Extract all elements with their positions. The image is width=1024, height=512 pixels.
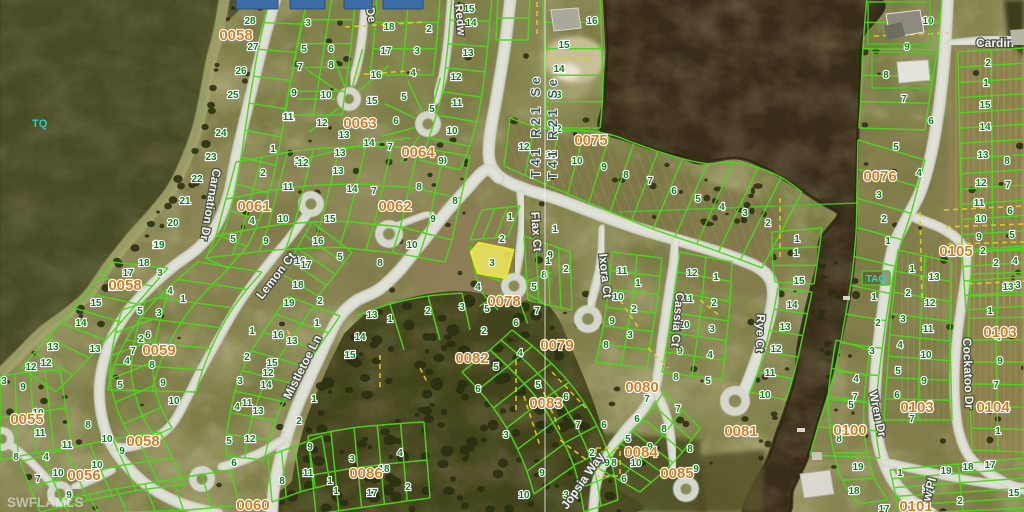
svg-text:3: 3 [1, 376, 7, 387]
svg-text:4: 4 [397, 448, 403, 459]
svg-text:1: 1 [871, 292, 877, 303]
svg-text:17: 17 [380, 46, 392, 57]
svg-text:28: 28 [244, 16, 256, 27]
svg-text:14: 14 [786, 300, 798, 311]
svg-text:12: 12 [924, 298, 936, 309]
svg-text:1: 1 [987, 306, 993, 317]
svg-text:0080: 0080 [625, 379, 658, 396]
svg-text:5: 5 [429, 104, 435, 115]
svg-text:18: 18 [962, 462, 974, 473]
svg-text:8: 8 [328, 60, 334, 71]
svg-text:7: 7 [575, 420, 581, 431]
svg-text:14: 14 [346, 184, 358, 195]
svg-text:0086: 0086 [349, 465, 382, 482]
svg-text:16: 16 [272, 330, 284, 341]
svg-text:2: 2 [875, 318, 881, 329]
svg-text:0062: 0062 [378, 198, 411, 215]
svg-text:5: 5 [117, 380, 123, 391]
svg-text:10: 10 [759, 390, 771, 401]
svg-text:8: 8 [452, 196, 458, 207]
svg-text:18: 18 [383, 22, 395, 33]
svg-text:11: 11 [283, 182, 294, 193]
svg-text:3: 3 [503, 430, 509, 441]
svg-text:2: 2 [985, 58, 991, 69]
svg-text:12: 12 [25, 362, 37, 373]
svg-text:11: 11 [974, 198, 985, 209]
svg-text:Cardin: Cardin [976, 36, 1014, 50]
svg-text:4: 4 [707, 350, 713, 361]
svg-text:3: 3 [709, 324, 715, 335]
svg-text:15: 15 [979, 100, 991, 111]
svg-text:6: 6 [634, 414, 640, 425]
svg-text:2: 2 [631, 304, 637, 315]
svg-text:8: 8 [1004, 156, 1010, 167]
svg-text:1: 1 [249, 326, 255, 337]
svg-text:3: 3 [156, 308, 162, 319]
svg-text:0055: 0055 [10, 411, 43, 428]
svg-text:5: 5 [337, 252, 343, 263]
svg-text:1: 1 [897, 468, 903, 479]
svg-text:13: 13 [334, 148, 346, 159]
svg-text:17: 17 [984, 460, 996, 471]
svg-text:8: 8 [611, 458, 617, 469]
svg-text:9: 9 [921, 376, 927, 387]
svg-text:10: 10 [168, 396, 180, 407]
svg-text:8: 8 [661, 424, 667, 435]
svg-text:12: 12 [770, 344, 782, 355]
svg-text:6: 6 [601, 420, 607, 431]
svg-text:8: 8 [687, 444, 693, 455]
svg-text:0076: 0076 [863, 168, 896, 185]
svg-text:1: 1 [552, 224, 558, 235]
svg-text:10: 10 [406, 240, 418, 251]
svg-text:14: 14 [260, 380, 272, 391]
svg-text:5: 5 [301, 44, 307, 55]
svg-text:14: 14 [979, 122, 991, 133]
svg-text:1: 1 [995, 426, 1001, 437]
svg-text:9: 9 [601, 162, 607, 173]
svg-text:2: 2 [426, 24, 432, 35]
svg-text:7: 7 [130, 346, 136, 357]
svg-text:5: 5 [226, 436, 232, 447]
svg-text:4: 4 [410, 68, 416, 79]
svg-text:2: 2 [711, 298, 717, 309]
svg-text:1: 1 [885, 236, 891, 247]
svg-text:10: 10 [277, 214, 289, 225]
svg-text:7: 7 [297, 62, 303, 73]
svg-text:1: 1 [713, 272, 719, 283]
svg-text:7: 7 [1005, 180, 1011, 191]
svg-text:3: 3 [876, 190, 882, 201]
svg-text:4: 4 [719, 202, 725, 213]
svg-text:6: 6 [231, 458, 237, 469]
svg-text:8: 8 [13, 452, 19, 463]
svg-text:0105: 0105 [939, 243, 972, 260]
svg-text:5: 5 [893, 142, 899, 153]
svg-text:15: 15 [793, 276, 805, 287]
svg-text:14: 14 [354, 332, 366, 343]
svg-text:1: 1 [387, 314, 393, 325]
svg-text:0058: 0058 [108, 277, 141, 294]
svg-text:13: 13 [89, 344, 101, 355]
svg-text:18: 18 [138, 258, 150, 269]
svg-text:9: 9 [693, 464, 699, 475]
svg-text:1: 1 [311, 394, 317, 405]
svg-text:3: 3 [1015, 280, 1021, 291]
svg-text:5: 5 [531, 282, 537, 293]
svg-text:Cockatoo Dr: Cockatoo Dr [960, 338, 976, 410]
svg-text:15: 15 [366, 96, 378, 107]
svg-text:13: 13 [286, 336, 298, 347]
svg-text:1: 1 [793, 248, 799, 259]
svg-text:4: 4 [897, 340, 903, 351]
svg-text:15: 15 [324, 214, 336, 225]
svg-text:2: 2 [563, 264, 569, 275]
svg-text:4: 4 [124, 356, 130, 367]
svg-text:12: 12 [316, 118, 328, 129]
svg-text:3: 3 [742, 208, 748, 219]
svg-text:TQ: TQ [32, 118, 48, 130]
svg-text:10: 10 [922, 16, 934, 27]
svg-text:T41 R21 Se: T41 R21 Se [545, 76, 560, 180]
svg-text:4: 4 [234, 402, 240, 413]
svg-text:T41 R21 Se: T41 R21 Se [528, 74, 543, 178]
svg-text:3: 3 [305, 18, 311, 29]
svg-text:2: 2 [993, 258, 999, 269]
svg-text:6: 6 [328, 44, 334, 55]
svg-text:5: 5 [705, 376, 711, 387]
svg-text:13: 13 [332, 166, 344, 177]
svg-text:0085: 0085 [660, 465, 693, 482]
svg-text:13: 13 [928, 272, 940, 283]
svg-text:1: 1 [545, 256, 551, 267]
svg-text:4: 4 [517, 348, 523, 359]
svg-text:7: 7 [901, 94, 907, 105]
svg-text:10: 10 [518, 490, 530, 501]
svg-text:8: 8 [377, 258, 383, 269]
svg-text:1: 1 [507, 212, 513, 223]
svg-text:2: 2 [881, 214, 887, 225]
svg-text:9: 9 [263, 236, 269, 247]
svg-text:4: 4 [1012, 256, 1018, 267]
svg-text:4: 4 [475, 282, 481, 293]
svg-text:7: 7 [675, 404, 681, 415]
svg-text:12: 12 [40, 358, 52, 369]
svg-text:2: 2 [980, 246, 986, 257]
svg-text:11: 11 [923, 324, 934, 335]
svg-text:6: 6 [894, 390, 900, 401]
svg-text:21: 21 [179, 196, 191, 207]
svg-text:15: 15 [558, 40, 570, 51]
svg-text:6: 6 [563, 392, 569, 403]
svg-text:0081: 0081 [724, 423, 757, 440]
svg-text:0061: 0061 [237, 198, 270, 215]
svg-text:0060: 0060 [236, 497, 269, 512]
svg-text:5: 5 [695, 194, 701, 205]
svg-text:0082: 0082 [455, 350, 488, 367]
svg-text:13: 13 [462, 48, 474, 59]
svg-text:9: 9 [976, 232, 982, 243]
svg-text:0083: 0083 [529, 395, 562, 412]
svg-text:0058: 0058 [126, 433, 159, 450]
svg-text:6: 6 [1007, 206, 1013, 217]
svg-text:8: 8 [603, 340, 609, 351]
svg-text:17: 17 [300, 260, 312, 271]
svg-text:0100: 0100 [833, 422, 866, 439]
svg-text:3: 3 [237, 376, 243, 387]
svg-text:5: 5 [535, 380, 541, 391]
svg-text:4: 4 [167, 286, 173, 297]
svg-text:8: 8 [85, 420, 91, 431]
svg-text:8: 8 [883, 70, 889, 81]
svg-text:8: 8 [541, 270, 547, 281]
svg-text:11: 11 [303, 468, 314, 479]
svg-text:SWFLAMLS: SWFLAMLS [7, 495, 84, 510]
svg-text:10: 10 [101, 434, 113, 445]
svg-text:3: 3 [489, 258, 495, 269]
svg-text:Rye Ct: Rye Ct [753, 314, 768, 352]
svg-text:2: 2 [957, 496, 963, 507]
svg-text:14: 14 [553, 64, 565, 75]
svg-text:1: 1 [314, 318, 320, 329]
svg-text:13: 13 [366, 310, 378, 321]
svg-text:3: 3 [414, 46, 420, 57]
svg-text:2: 2 [296, 416, 302, 427]
svg-text:12: 12 [686, 268, 698, 279]
svg-text:13: 13 [977, 150, 989, 161]
svg-text:8: 8 [279, 476, 285, 487]
svg-text:7: 7 [371, 186, 377, 197]
svg-text:4: 4 [43, 452, 49, 463]
svg-text:11: 11 [283, 112, 294, 123]
svg-text:0063: 0063 [343, 115, 376, 132]
svg-text:0056: 0056 [67, 467, 100, 484]
svg-text:7: 7 [387, 142, 393, 153]
svg-text:8: 8 [149, 360, 155, 371]
svg-text:2: 2 [405, 482, 411, 493]
svg-text:15: 15 [90, 298, 102, 309]
svg-text:11: 11 [35, 428, 46, 439]
svg-text:6: 6 [513, 318, 519, 329]
svg-text:17: 17 [878, 504, 890, 512]
svg-text:11: 11 [617, 266, 628, 277]
svg-text:0084: 0084 [624, 444, 658, 461]
svg-text:2: 2 [244, 352, 250, 363]
svg-text:5: 5 [895, 366, 901, 377]
svg-text:9: 9 [20, 382, 26, 393]
svg-text:12: 12 [262, 368, 274, 379]
svg-text:0078: 0078 [487, 293, 520, 310]
svg-text:19: 19 [940, 466, 952, 477]
svg-text:11: 11 [242, 398, 253, 409]
svg-text:1: 1 [635, 278, 641, 289]
svg-text:7: 7 [35, 474, 41, 485]
svg-text:2: 2 [905, 288, 911, 299]
svg-text:9: 9 [430, 214, 436, 225]
svg-text:11: 11 [765, 368, 776, 379]
svg-text:19: 19 [153, 240, 165, 251]
svg-text:23: 23 [205, 152, 217, 163]
svg-text:13: 13 [779, 322, 791, 333]
svg-text:16: 16 [586, 16, 598, 27]
svg-text:10: 10 [446, 126, 458, 137]
svg-text:19: 19 [283, 298, 295, 309]
svg-text:0064: 0064 [401, 144, 435, 161]
svg-text:13: 13 [252, 406, 264, 417]
svg-text:12: 12 [244, 434, 256, 445]
svg-text:12: 12 [975, 178, 987, 189]
svg-text:9: 9 [609, 316, 615, 327]
svg-text:1: 1 [909, 264, 915, 275]
svg-text:5: 5 [230, 234, 236, 245]
svg-text:26: 26 [235, 66, 247, 77]
svg-text:17: 17 [366, 488, 378, 499]
svg-text:10: 10 [571, 156, 583, 167]
svg-text:13: 13 [47, 342, 59, 353]
svg-text:5: 5 [1009, 230, 1015, 241]
svg-text:14: 14 [75, 318, 87, 329]
svg-text:20: 20 [167, 218, 179, 229]
svg-text:22: 22 [191, 174, 203, 185]
svg-text:15: 15 [344, 350, 356, 361]
svg-text:9: 9 [997, 356, 1003, 367]
svg-text:9: 9 [291, 88, 297, 99]
svg-text:5: 5 [493, 362, 499, 373]
svg-text:7: 7 [647, 176, 653, 187]
svg-text:9: 9 [677, 346, 683, 357]
svg-text:8: 8 [623, 170, 629, 181]
svg-text:15: 15 [1008, 488, 1020, 499]
svg-text:1: 1 [180, 294, 186, 305]
svg-text:6: 6 [671, 186, 677, 197]
svg-text:18: 18 [848, 486, 860, 497]
svg-text:1: 1 [794, 234, 800, 245]
svg-text:4: 4 [916, 168, 922, 179]
svg-text:16: 16 [312, 236, 324, 247]
svg-text:11: 11 [452, 98, 463, 109]
svg-text:2: 2 [317, 296, 323, 307]
svg-text:12: 12 [450, 72, 462, 83]
svg-text:7: 7 [852, 392, 858, 403]
svg-text:3: 3 [627, 330, 633, 341]
svg-text:6: 6 [393, 116, 399, 127]
svg-text:24: 24 [215, 128, 227, 139]
svg-text:9: 9 [119, 446, 125, 457]
svg-text:2: 2 [260, 168, 266, 179]
svg-text:3: 3 [459, 302, 465, 313]
svg-text:10: 10 [920, 350, 932, 361]
svg-text:1: 1 [333, 486, 339, 497]
svg-text:2: 2 [499, 234, 505, 245]
svg-text:8: 8 [673, 372, 679, 383]
svg-text:2: 2 [481, 326, 487, 337]
svg-text:3: 3 [349, 454, 355, 465]
svg-text:3: 3 [900, 314, 906, 325]
svg-text:TAQ: TAQ [866, 274, 887, 285]
svg-text:16: 16 [370, 70, 382, 81]
svg-text:5: 5 [137, 306, 143, 317]
svg-text:11: 11 [62, 440, 73, 451]
svg-text:12: 12 [297, 158, 309, 169]
svg-text:0103: 0103 [900, 399, 933, 416]
svg-text:0104: 0104 [976, 399, 1010, 416]
svg-text:6: 6 [928, 116, 934, 127]
svg-text:4: 4 [249, 216, 255, 227]
svg-text:Redw: Redw [452, 3, 469, 37]
svg-text:6: 6 [145, 330, 151, 341]
svg-text:0103: 0103 [983, 324, 1016, 341]
svg-text:0058: 0058 [219, 27, 252, 44]
svg-text:25: 25 [227, 90, 239, 101]
svg-text:3: 3 [157, 268, 163, 279]
svg-text:7: 7 [993, 380, 999, 391]
svg-text:3: 3 [869, 346, 875, 357]
svg-text:10: 10 [320, 90, 332, 101]
svg-text:2: 2 [765, 218, 771, 229]
svg-text:7: 7 [534, 306, 540, 317]
svg-text:18: 18 [292, 280, 304, 291]
svg-text:1: 1 [983, 78, 989, 89]
svg-text:1: 1 [270, 144, 276, 155]
svg-text:0059: 0059 [142, 342, 175, 359]
svg-text:6: 6 [621, 474, 627, 485]
svg-text:Flax Ct: Flax Ct [528, 211, 545, 252]
svg-text:10: 10 [52, 468, 64, 479]
svg-text:9: 9 [438, 156, 444, 167]
svg-text:10: 10 [975, 214, 987, 225]
svg-text:1: 1 [327, 476, 333, 487]
svg-text:14: 14 [363, 138, 375, 149]
svg-text:9: 9 [307, 442, 313, 453]
svg-text:2: 2 [425, 306, 431, 317]
svg-text:4: 4 [853, 374, 859, 385]
svg-text:8: 8 [416, 182, 422, 193]
svg-text:0075: 0075 [574, 132, 607, 149]
svg-text:13: 13 [1002, 282, 1014, 293]
svg-text:6: 6 [475, 384, 481, 395]
svg-text:9: 9 [160, 378, 166, 389]
svg-text:19: 19 [852, 462, 864, 473]
svg-text:5: 5 [401, 92, 407, 103]
